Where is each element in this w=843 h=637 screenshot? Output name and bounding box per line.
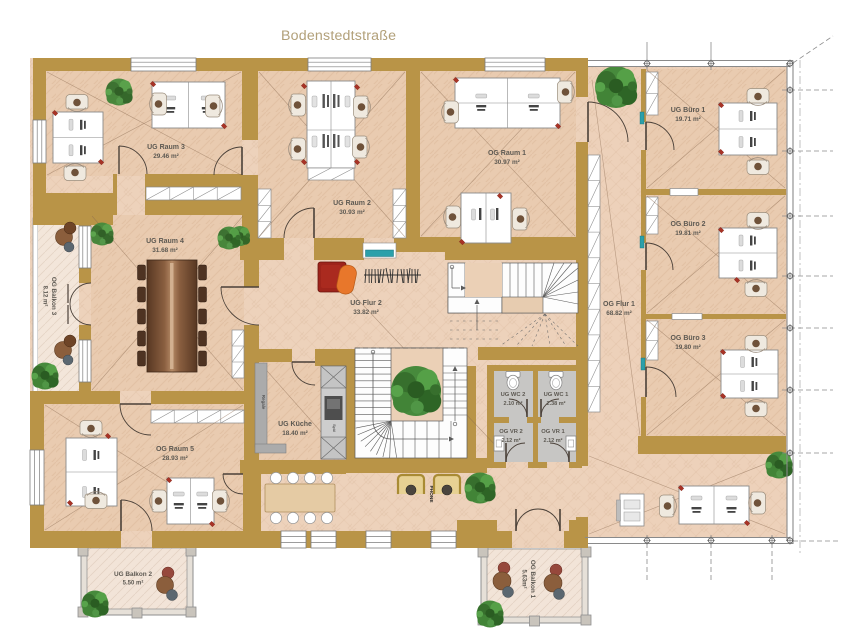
svg-text:2.10 m²: 2.10 m² [504, 400, 523, 407]
svg-text:UG Balkon 2: UG Balkon 2 [114, 571, 152, 578]
svg-text:UG Küche: UG Küche [278, 421, 312, 428]
svg-text:28.93 m²: 28.93 m² [162, 455, 188, 462]
svg-text:OG Büro 2: OG Büro 2 [670, 221, 705, 228]
svg-text:UG Raum 3: UG Raum 3 [147, 144, 185, 151]
svg-text:Spül: Spül [332, 424, 337, 432]
svg-text:UG WC 2: UG WC 2 [501, 392, 526, 398]
svg-text:OG VR 1: OG VR 1 [541, 429, 565, 435]
svg-text:19.80 m²: 19.80 m² [675, 344, 701, 351]
svg-text:2.12 m²: 2.12 m² [544, 437, 563, 444]
svg-text:UG Raum 4: UG Raum 4 [146, 238, 184, 245]
svg-text:19.71 m²: 19.71 m² [675, 116, 701, 123]
svg-text:2.12 m²: 2.12 m² [502, 437, 521, 444]
svg-text:Bodenstedtstraße: Bodenstedtstraße [281, 28, 396, 44]
svg-text:UG WC 1: UG WC 1 [544, 392, 570, 398]
svg-text:2.38 m²: 2.38 m² [547, 400, 566, 407]
svg-text:31.68 m²: 31.68 m² [152, 247, 178, 254]
svg-text:33.82 m²: 33.82 m² [353, 309, 379, 316]
svg-text:29.46 m²: 29.46 m² [153, 153, 179, 160]
svg-text:18.40 m²: 18.40 m² [282, 430, 308, 437]
svg-text:8.12 m²: 8.12 m² [42, 286, 49, 307]
svg-text:OG Flur 1: OG Flur 1 [603, 301, 635, 308]
svg-text:OG Balkon 3: OG Balkon 3 [50, 277, 57, 316]
svg-text:5.50 m²: 5.50 m² [123, 580, 144, 587]
svg-text:19.81 m²: 19.81 m² [675, 230, 701, 237]
svg-text:UG Raum 2: UG Raum 2 [333, 200, 371, 207]
svg-text:OG Raum 5: OG Raum 5 [156, 446, 194, 453]
svg-text:68.82 m²: 68.82 m² [606, 310, 632, 317]
svg-text:Regale: Regale [261, 395, 266, 410]
svg-text:OG VR 2: OG VR 2 [499, 429, 523, 435]
svg-text:OG Büro 3: OG Büro 3 [670, 335, 705, 342]
svg-text:PHONE: PHONE [428, 485, 434, 503]
svg-text:OG Raum 1: OG Raum 1 [488, 150, 526, 157]
svg-text:OG Balkon 1: OG Balkon 1 [529, 560, 536, 599]
svg-text:UG Flur 2: UG Flur 2 [350, 300, 382, 307]
svg-text:5.63m²: 5.63m² [521, 569, 528, 588]
svg-text:30.93 m²: 30.93 m² [339, 209, 365, 216]
svg-text:UG Büro 1: UG Büro 1 [671, 107, 706, 114]
svg-text:30.97 m²: 30.97 m² [494, 159, 520, 166]
